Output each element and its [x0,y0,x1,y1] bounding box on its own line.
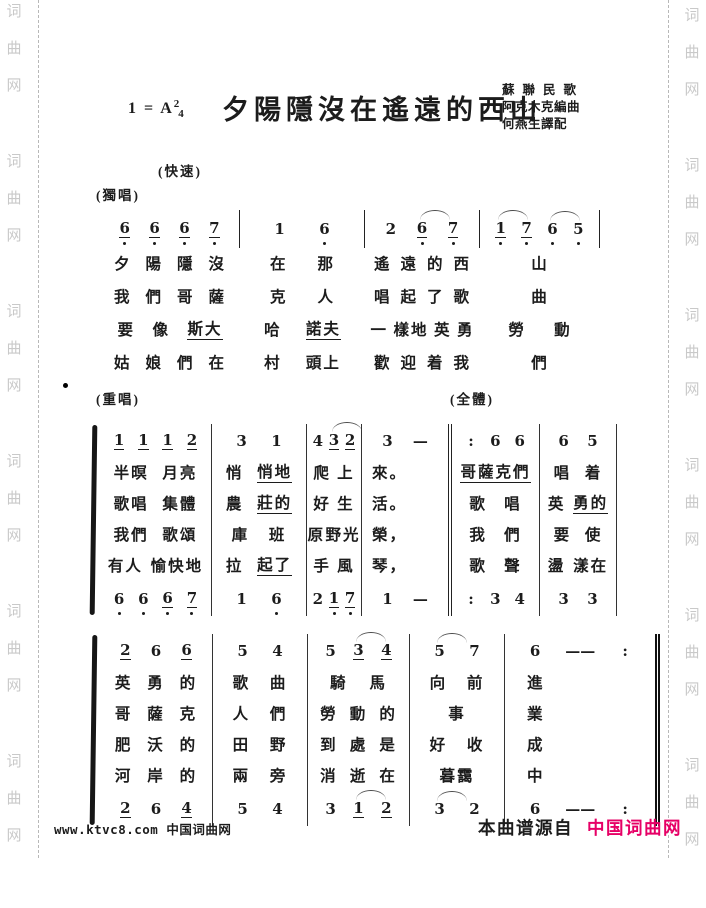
watermark-char: 网 [681,232,703,248]
watermark-char: 词 [3,754,25,770]
measure-cell: 事 [410,699,505,730]
note-number: 4 [515,592,525,607]
lyrics-row: 河岸的兩旁消逝在暮靄中 [100,761,660,792]
notation-row: 26654534576——: [100,634,660,668]
lyrics-row: 半暝月亮悄悄地爬上來。哥薩克們唱着 [100,458,617,489]
note-number: 1 [382,592,392,607]
measure-cell: 遙遠的西 [365,248,480,281]
measure-cell: 人們 [213,699,308,730]
note-number: 2 [187,433,197,450]
lyric-segment: 哈 [264,322,282,339]
lyric-segment: 的 [427,256,445,273]
lyric-segment: 聲 [504,558,522,575]
footer-brand: 中国词曲网 [587,819,682,839]
measure-cell: 57 [410,634,505,668]
watermark-char: 曲 [681,795,703,811]
lyric-segment: 兩 [233,768,251,785]
lyric-segment: 田 [233,737,251,754]
watermark-char: 网 [3,378,25,394]
measure-cell: 唱起了歌 [365,281,480,314]
measure-cell: 我們歌頌 [100,520,212,551]
notation-row: 6667162171—:3433 [100,582,617,616]
watermark-char: 词 [681,608,703,624]
watermark-column-left: 词曲网词曲网词曲网词曲网词曲网词曲网 [3,4,25,904]
lyrics-row: 有人愉快地拉起了手風琴，歌聲盪漾在 [100,551,617,582]
lyric-segment: 河 [115,768,133,785]
lyric-segment: 哥 [115,706,133,723]
lyric-segment: 手 [313,558,331,575]
lyric-segment: 頭上 [306,355,341,372]
watermark-char: 词 [3,604,25,620]
lyric-segment: 收 [467,737,485,754]
lyric-segment: 一 [370,322,388,339]
note-number: — [413,434,428,449]
meter-denominator: 4 [178,108,186,120]
note-number: 6 [530,644,540,659]
note-number: 2 [345,433,355,450]
note-number: 1 [114,433,124,450]
footer-source-prefix: 本曲谱源自 [478,819,573,839]
lyric-segment: 使 [585,527,603,544]
note-number: 6 [490,434,500,449]
lyric-segment: 沃 [147,737,165,754]
measure-cell: 歌聲 [452,551,540,582]
lyric-segment: 西 [453,256,471,273]
note-number: 1 [353,801,363,818]
measure-cell: 到處是 [308,730,410,761]
lyric-segment: 歌 [469,558,487,575]
note-number: 6 [151,802,161,817]
lyrics-row: 姑娘們在村頭上歡迎着我們 [100,347,600,380]
lyric-segment: 我 [114,289,132,306]
watermark-char: 曲 [3,491,25,507]
lyrics-row: 夕陽隱沒在那遙遠的西山 [100,248,600,281]
lyrics-row: 要像斯大哈諾夫一樣地英勇勞動 [100,314,600,347]
note-number: 2 [120,801,130,818]
lyric-segment: 進 [527,675,545,692]
lyrics-row: 歌唱集體農莊的好生活。歌唱英勇的 [100,489,617,520]
measure-cell: 我們 [452,520,540,551]
measure-cell: 6667 [100,582,212,616]
lyric-segment: 諾夫 [306,321,341,340]
measure-cell: 來。 [362,458,452,489]
lyric-segment: 沒 [208,256,226,273]
measure-cell: 山 [480,248,600,281]
lyric-segment: 克 [270,289,288,306]
note-number: 2 [120,643,130,660]
watermark-char: 网 [681,832,703,848]
lyric-segment: 馬 [369,675,387,692]
note-number: 2 [381,801,391,818]
measure-cell: 夕陽隱沒 [100,248,240,281]
watermark-char: 词 [681,8,703,24]
lyric-segment: 娘 [145,355,163,372]
lyric-segment: 拉 [226,558,244,575]
key-signature-key: 1 = A [128,100,174,117]
lyric-segment: 生 [337,496,355,513]
note-number: 3 [329,433,339,450]
measure-cell: 中 [505,761,660,792]
note-number: 3 [236,434,246,449]
notation-system-1: 6667162671765夕陽隱沒在那遙遠的西山我們哥薩克人唱起了歌曲要像斯大哈… [100,210,600,380]
lyric-segment: 到 [320,737,338,754]
watermark-char: 网 [681,682,703,698]
note-number: 4 [181,801,191,818]
measure-cell: 歡迎着我 [365,347,480,380]
lyric-segment: 庫 [232,527,250,544]
lyric-segment: 要 [554,527,572,544]
measure-cell: 農莊的 [212,489,307,520]
measure-cell: 1112 [100,424,212,458]
lyric-segment: 遙 [374,256,392,273]
lyric-segment: 隱 [177,256,195,273]
lyric-segment: 姑 [114,355,132,372]
watermark-char: 网 [3,78,25,94]
note-number: 1 [274,222,284,237]
lyric-segment: 勞 [320,706,338,723]
note-number: 6 [558,434,568,449]
lyric-segment: 旁 [270,768,288,785]
measure-cell: 村頭上 [240,347,365,380]
lyric-segment: 像 [152,322,170,339]
song-title: 夕陽隱沒在遙遠的西山 [222,88,542,127]
lyric-segment: 歌 [469,496,487,513]
note-number: 1 [329,591,339,608]
credits-block: 蘇聯民歌 阿克木克編曲 何燕生譯配 [502,82,602,133]
lyric-segment: 們 [504,527,522,544]
repeat-colon: : [466,434,476,449]
measure-cell: 16 [212,582,307,616]
measure-cell: 們 [480,347,600,380]
watermark-char: 曲 [3,341,25,357]
note-number: 5 [237,644,247,659]
section-label-duet: (重唱) [96,388,140,408]
notation-system-3: 26654534576——:英勇的歌曲騎馬向前進哥薩克人們勞動的事業肥沃的田野到… [100,634,660,826]
lyric-segment: 是 [379,737,397,754]
section-label-all: (全體) [450,388,494,408]
lyrics-row: 哥薩克人們勞動的事業 [100,699,660,730]
measure-cell: 好收 [410,730,505,761]
lyric-segment: 唱 [374,289,392,306]
lyric-segment: 處 [350,737,368,754]
measure-cell: 6——: [505,634,660,668]
note-number: 5 [237,802,247,817]
note-number: 6 [119,221,129,238]
measure-cell: 成 [505,730,660,761]
note-number: 1 [138,433,148,450]
measure-cell: 向前 [410,668,505,699]
lyric-segment: 在 [379,768,397,785]
credit-origin: 蘇聯民歌 [502,82,602,99]
measure-cell: 盪漾在 [540,551,617,582]
lyric-segment: 野 [270,737,288,754]
lyric-segment: 動 [554,322,572,339]
measure-cell: 勞動 [480,314,600,347]
lyric-segment: 愉快地 [151,558,204,575]
measure-cell: 琴， [362,551,452,582]
note-number: 1 [271,434,281,449]
measure-cell: 哥薩克 [100,699,213,730]
lyric-segment: 樣地 [393,322,428,339]
measure-cell: 33 [540,582,617,616]
watermark-char: 词 [681,158,703,174]
measure-cell: 歌曲 [213,668,308,699]
note-number: 6 [162,591,172,608]
watermark-char: 网 [681,532,703,548]
lyric-segment: 爬 [313,465,331,482]
lyric-segment: 歡 [374,355,392,372]
note-number: 1 [236,592,246,607]
dashed-border-left [38,0,39,858]
note-number: 6 [179,221,189,238]
lyric-segment: 唱 [504,496,522,513]
note-number: 7 [448,221,458,238]
note-number: 4 [381,643,391,660]
lyric-segment: 岸 [147,768,165,785]
measure-cell: 1— [362,582,452,616]
watermark-char: 网 [3,678,25,694]
measure-cell: 庫班 [212,520,307,551]
lyric-segment: 好 [313,496,331,513]
lyric-segment: 悄 [226,465,244,482]
measure-cell: :66 [452,424,540,458]
lyric-segment: 消 [320,768,338,785]
note-number: 6 [114,592,124,607]
measure-cell: 哥薩克們 [452,458,540,489]
lyric-segment: 歌頌 [162,527,197,544]
lyrics-row: 我們哥薩克人唱起了歌曲 [100,281,600,314]
watermark-char: 网 [3,228,25,244]
lyric-segment: 村 [264,355,282,372]
measure-cell: 英勇的 [100,668,213,699]
lyric-segment: 夕 [114,256,132,273]
note-number: 6 [417,221,427,238]
note-number: 5 [434,644,444,659]
note-number: 2 [386,222,396,237]
lyric-segment: 業 [527,706,545,723]
lyric-segment: 野光 [325,527,360,544]
measure-cell: 半暝月亮 [100,458,212,489]
lyric-segment: 歌 [233,675,251,692]
watermark-char: 曲 [681,495,703,511]
lyric-segment: 起 [400,289,418,306]
credit-translator: 何燕生譯配 [502,116,602,133]
note-number: — [413,592,428,607]
lyric-segment: 着 [427,355,445,372]
note-number: 6 [271,592,281,607]
lyric-segment: 盪 [548,558,566,575]
lyric-segment: 在 [270,256,288,273]
note-number: 7 [521,221,531,238]
measure-cell: 河岸的 [100,761,213,792]
measure-cell: 騎馬 [308,668,410,699]
watermark-char: 网 [3,528,25,544]
measure-cell: 要使 [540,520,617,551]
lyric-segment: 哥薩克們 [460,464,530,483]
lyric-segment: 山 [531,256,549,273]
measure-cell: 歌唱集體 [100,489,212,520]
measure-cell: 榮， [362,520,452,551]
lyric-segment: 陽 [145,256,163,273]
watermark-char: 词 [3,154,25,170]
measure-cell: 217 [307,582,362,616]
note-number: 3 [490,592,500,607]
lyric-segment: 斯大 [187,321,222,340]
watermark-char: 网 [3,828,25,844]
lyric-segment: 迎 [400,355,418,372]
lyric-segment: 英 [115,675,133,692]
measure-cell: 原野光 [307,520,362,551]
lyric-segment: 勇的 [573,495,608,514]
lyric-segment: 了 [427,289,445,306]
watermark-char: 曲 [3,41,25,57]
watermark-char: 词 [681,458,703,474]
lyric-segment: 漾在 [573,558,608,575]
measure-cell: 一樣地英勇 [365,314,480,347]
note-number: 3 [325,802,335,817]
measure-cell: 在那 [240,248,365,281]
lyric-segment: 向 [430,675,448,692]
lyric-segment: 薩 [208,289,226,306]
lyric-segment: 我們 [114,527,149,544]
measure-cell: 田野 [213,730,308,761]
watermark-char: 曲 [681,645,703,661]
lyric-segment: 們 [531,355,549,372]
measure-cell: 唱着 [540,458,617,489]
notation-system-2: 1112314323—:6665半暝月亮悄悄地爬上來。哥薩克們唱着歌唱集體農莊的… [100,424,617,616]
lyric-segment: 風 [337,558,355,575]
lyric-segment: 動 [350,706,368,723]
measure-cell: 1765 [480,210,600,248]
tempo-marking: (快速) [158,160,202,180]
footer-site-url: www.ktvc8.com 中国词曲网 [54,819,231,838]
measure-cell: 克人 [240,281,365,314]
watermark-column-right: 词曲网词曲网词曲网词曲网词曲网词曲网 [681,8,703,908]
watermark-char: 曲 [3,641,25,657]
note-number: 6 [149,221,159,238]
lyric-segment: 唱 [554,465,572,482]
lyric-segment: 班 [269,527,287,544]
lyric-segment: 薩 [147,706,165,723]
lyric-segment: 着 [585,465,603,482]
lyric-segment: 前 [467,675,485,692]
watermark-char: 曲 [3,191,25,207]
measure-cell: 歌唱 [452,489,540,520]
measure-cell: 勞動的 [308,699,410,730]
note-number: 3 [558,592,568,607]
measure-cell: 65 [540,424,617,458]
section-label-solo: (獨唱) [96,184,140,204]
lyric-segment: 勇 [457,322,475,339]
lyric-segment: 悄地 [257,464,292,483]
measure-cell: 曲 [480,281,600,314]
notation-row: 1112314323—:6665 [100,424,617,458]
key-signature: 1 = A24 [128,98,186,120]
footer-source: 本曲谱源自中国词曲网 [478,815,682,840]
lyric-segment: 們 [177,355,195,372]
measure-cell: 要像斯大 [100,314,240,347]
lyric-segment: 們 [145,289,163,306]
note-number: 3 [382,434,392,449]
measure-cell: 姑娘們在 [100,347,240,380]
note-number: 4 [272,644,282,659]
measure-cell: 英勇的 [540,489,617,520]
watermark-char: 网 [681,82,703,98]
lyric-segment: 半暝 [114,465,149,482]
note-number: 6 [547,222,557,237]
note-number: —— [565,644,595,659]
note-number: 5 [325,644,335,659]
lyric-segment: 起了 [257,557,292,576]
measure-cell: 爬上 [307,458,362,489]
lyric-segment: 有人 [108,558,143,575]
lyric-segment: 人 [233,706,251,723]
watermark-char: 曲 [681,345,703,361]
measure-cell: 暮靄 [410,761,505,792]
lyric-segment: 逝 [350,768,368,785]
measure-cell: 拉起了 [212,551,307,582]
lyric-segment: 我 [453,355,471,372]
watermark-char: 曲 [3,791,25,807]
watermark-char: 词 [681,308,703,324]
lyric-segment: 歌 [453,289,471,306]
measure-cell: 活。 [362,489,452,520]
measure-cell: 好生 [307,489,362,520]
lyric-segment: 曲 [531,289,549,306]
measure-cell: 54 [213,634,308,668]
lyric-segment: 榮， [372,527,407,544]
note-number: 7 [469,644,479,659]
measure-cell: 3— [362,424,452,458]
lyric-segment: 肥 [115,737,133,754]
note-number: 3 [353,643,363,660]
lyric-segment: 英 [434,322,452,339]
note-number: 4 [272,802,282,817]
watermark-char: 词 [681,758,703,774]
note-number: 6 [151,644,161,659]
note-number: 7 [187,591,197,608]
measure-cell: 267 [365,210,480,248]
lyric-segment: 來。 [372,465,407,482]
lyric-segment: 好 [430,737,448,754]
note-number: 7 [209,221,219,238]
notation-row: 6667162671765 [100,210,600,248]
measure-cell: 手風 [307,551,362,582]
note-number: 1 [162,433,172,450]
measure-cell: 534 [308,634,410,668]
watermark-char: 曲 [681,45,703,61]
watermark-char: 词 [3,454,25,470]
lyric-segment: 事 [448,706,466,723]
measure-cell: 我們哥薩 [100,281,240,314]
lyric-segment: 那 [317,256,335,273]
measure-cell: 有人愉快地 [100,551,212,582]
measure-cell: 432 [307,424,362,458]
lyric-segment: 勞 [508,322,526,339]
note-number: 4 [313,434,323,449]
measure-cell: 肥沃的 [100,730,213,761]
measure-cell: 16 [240,210,365,248]
lyric-segment: 的 [180,737,198,754]
lyric-segment: 歌唱 [114,496,149,513]
lyric-segment: 集體 [162,496,197,513]
note-number: 7 [345,591,355,608]
measure-cell: 266 [100,634,213,668]
measure-cell: 31 [212,424,307,458]
lyric-segment: 成 [527,737,545,754]
measure-cell: 6667 [100,210,240,248]
lyrics-row: 英勇的歌曲騎馬向前進 [100,668,660,699]
